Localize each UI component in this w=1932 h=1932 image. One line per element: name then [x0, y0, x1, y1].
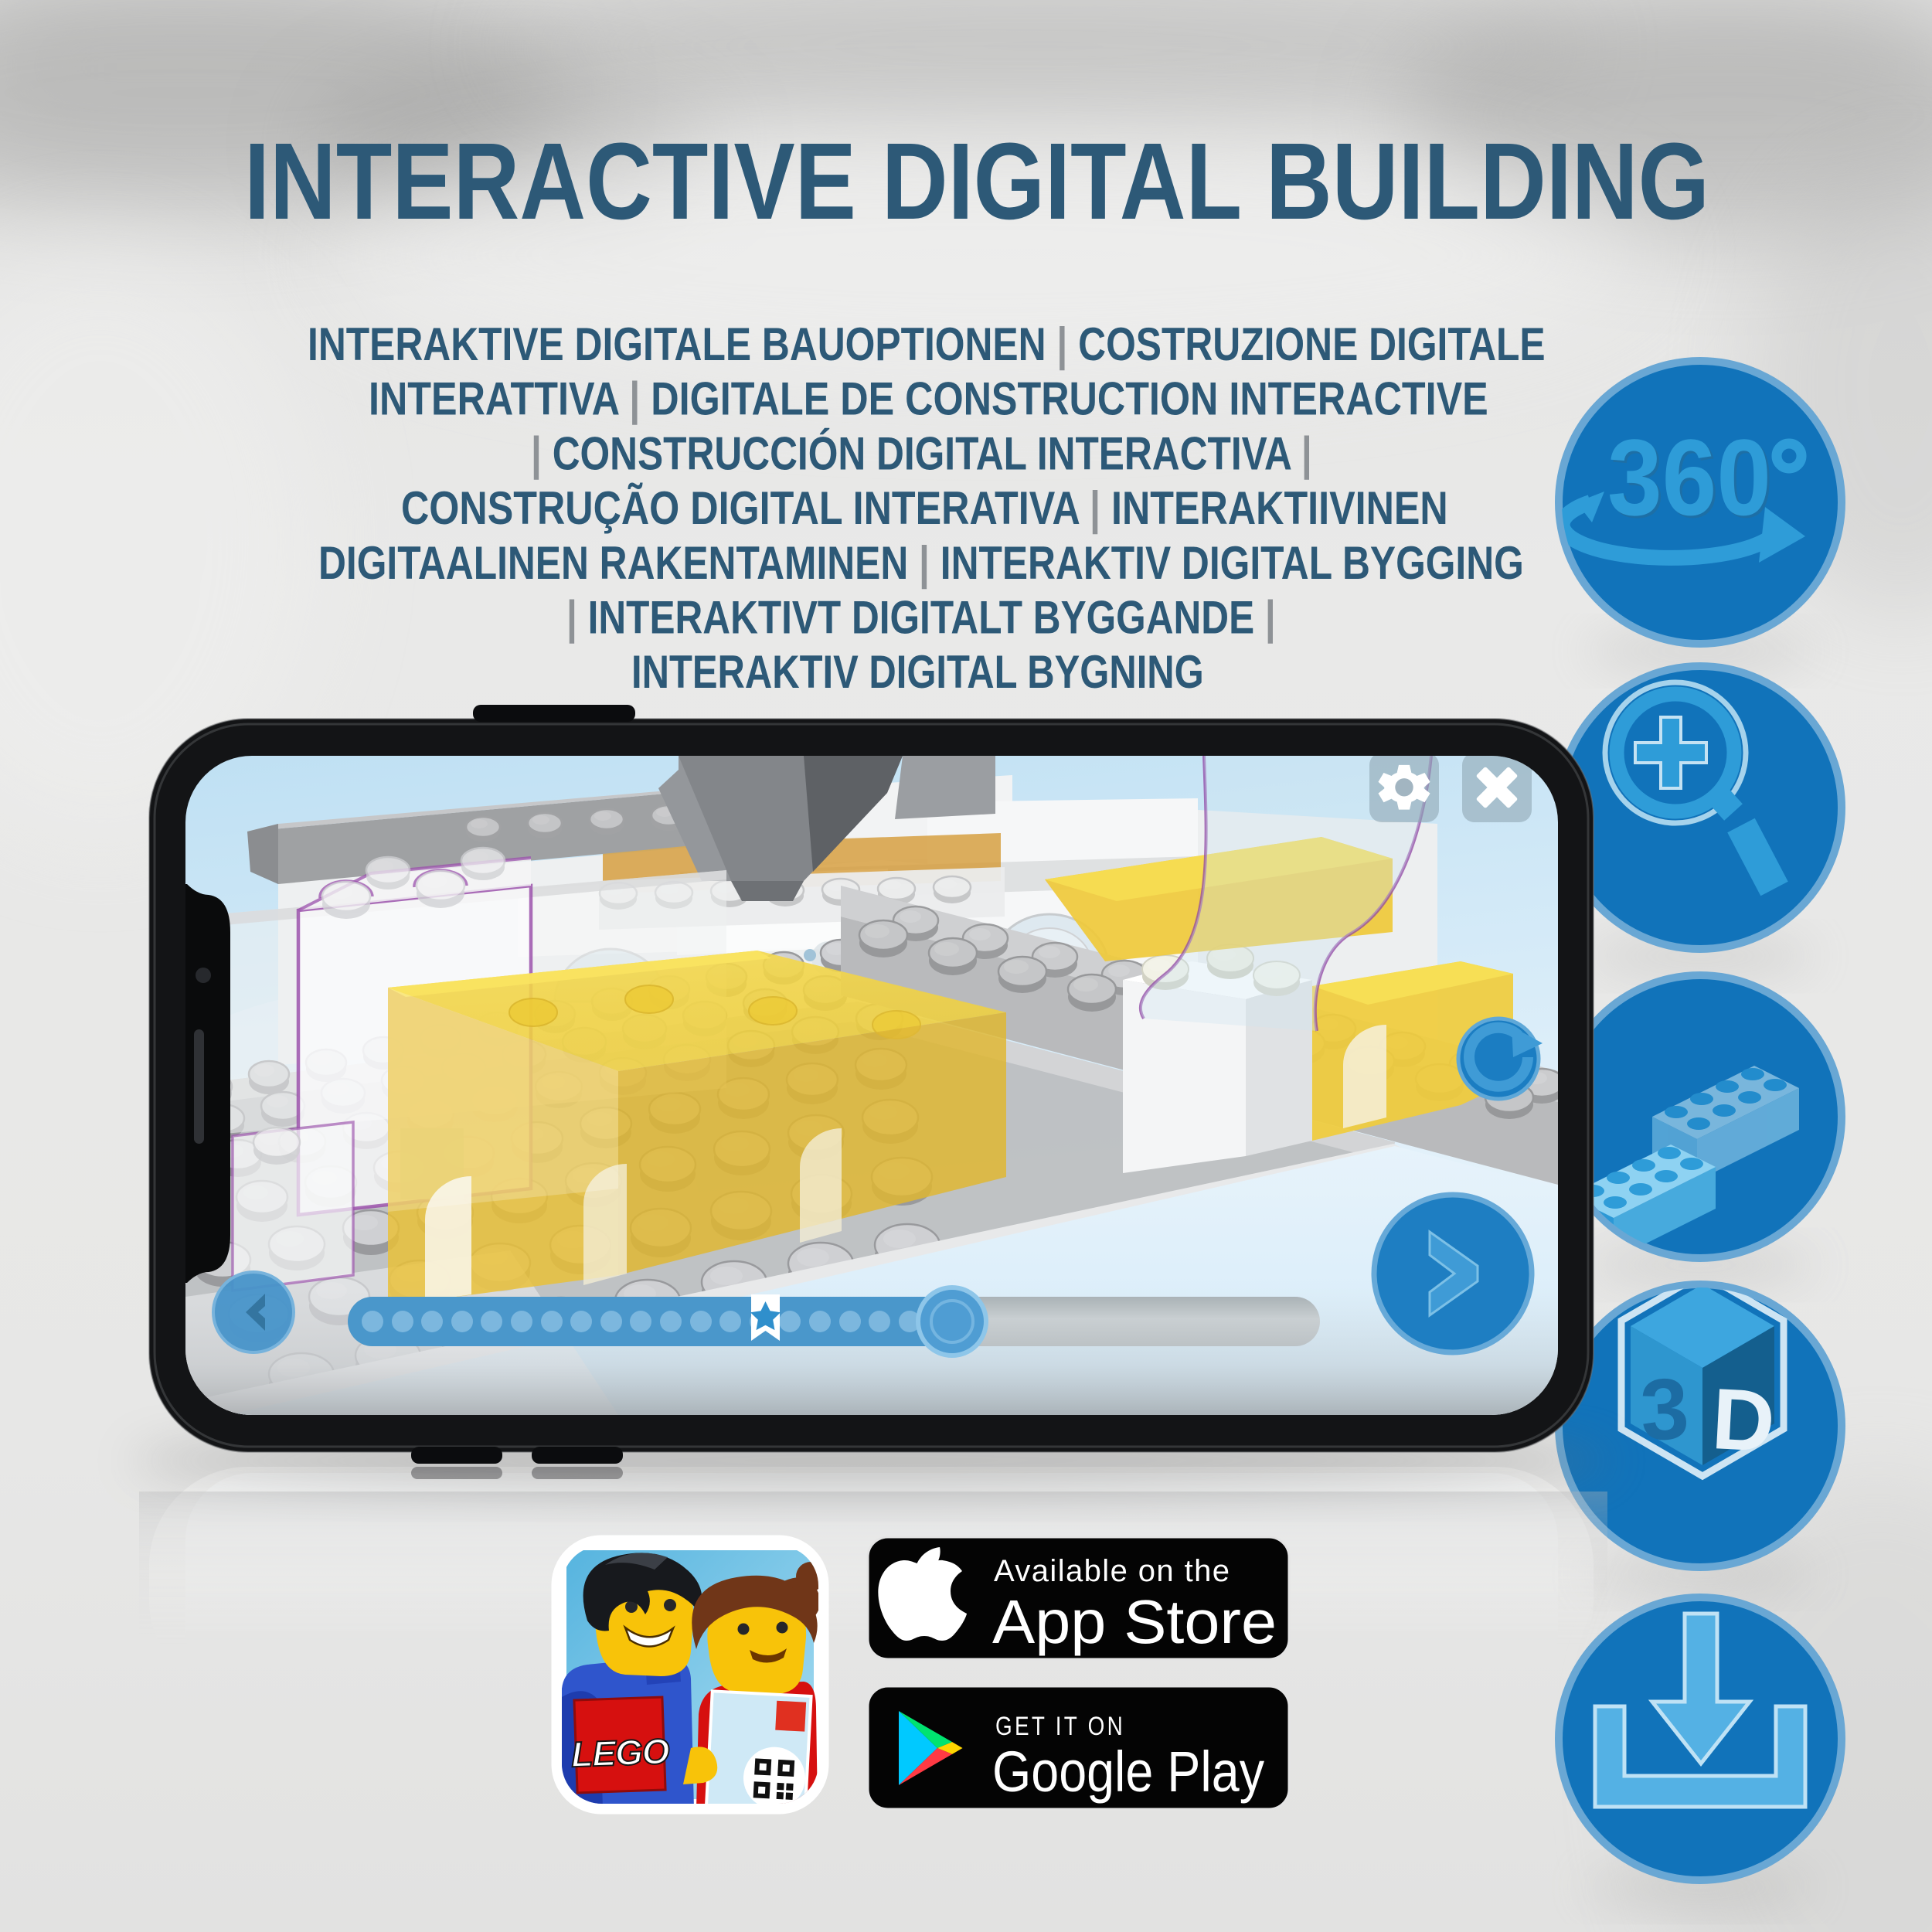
svg-text:| CONSTRUCCIÓN DIGITAL INTERAC: | CONSTRUCCIÓN DIGITAL INTERACTIVA |	[531, 427, 1312, 481]
svg-text:| INTERAKTIVT DIGITALT BYGGAND: | INTERAKTIVT DIGITALT BYGGANDE |	[566, 591, 1276, 645]
svg-text:CONSTRUÇÃO DIGITAL INTERATIVA: CONSTRUÇÃO DIGITAL INTERATIVA | INTERAKT…	[401, 482, 1448, 535]
svg-text:GET IT ON: GET IT ON	[995, 1712, 1125, 1741]
svg-text:INTERACTIVE DIGITAL BUILDING: INTERACTIVE DIGITAL BUILDING	[244, 120, 1709, 242]
svg-text:LEGO: LEGO	[570, 1731, 670, 1774]
svg-text:360: 360	[1607, 417, 1771, 538]
svg-text:3: 3	[1638, 1360, 1692, 1459]
svg-text:DIGITAALINEN RAKENTAMINEN | IN: DIGITAALINEN RAKENTAMINEN | INTERAKTIV D…	[318, 536, 1524, 590]
svg-text:Available on the: Available on the	[994, 1554, 1230, 1588]
svg-text:Google Play: Google Play	[992, 1740, 1264, 1804]
svg-text:INTERAKTIV DIGITAL BYGNING: INTERAKTIV DIGITAL BYGNING	[631, 645, 1204, 698]
svg-text:INTERAKTIVE DIGITALE BAUOPTION: INTERAKTIVE DIGITALE BAUOPTIONEN | COSTR…	[308, 318, 1546, 372]
svg-text:D: D	[1709, 1370, 1777, 1470]
svg-text:INTERATTIVA | DIGITALE DE CONS: INTERATTIVA | DIGITALE DE CONSTRUCTION I…	[369, 373, 1488, 426]
svg-text:App Store: App Store	[992, 1587, 1277, 1656]
